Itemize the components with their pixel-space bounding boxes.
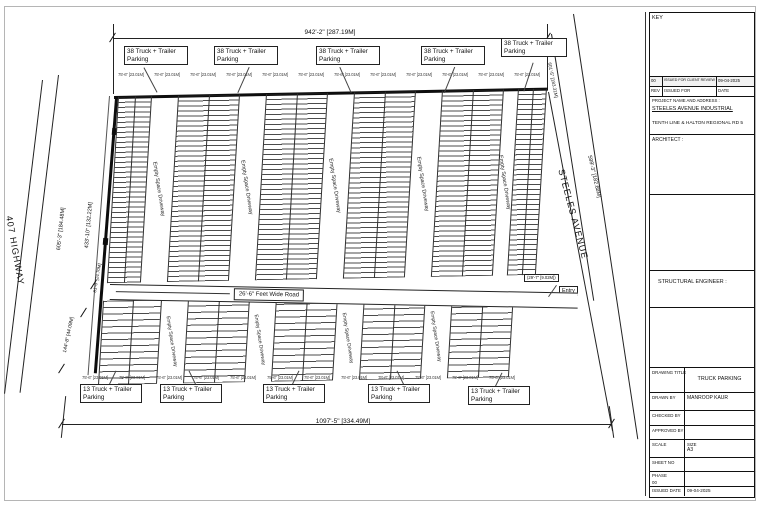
driveway-label: Empty Space Driveway: [415, 156, 429, 212]
approved-by-label: APPROVED BY: [652, 428, 683, 433]
architect-section: ARCHITECT :: [650, 135, 754, 195]
stall-ladder: [167, 95, 240, 282]
rev-issued-for: ISSUED FOR CLIENT REVIEW: [663, 77, 717, 86]
driveway-label: Empty Space Driveway: [341, 312, 355, 364]
parking-sign-top-1: 38 Truck + Trailer Parking: [124, 46, 188, 65]
sheet-no-value: [684, 458, 754, 471]
structural-label: STRUCTURAL ENGINEER :: [658, 279, 727, 285]
stall-ladder: [431, 89, 504, 276]
blank-section-2: [650, 308, 754, 368]
sheet-no-row: SHEET NO: [650, 458, 754, 472]
revision-header-row: REV ISSUED FOR DATE: [650, 87, 754, 97]
driveway-label: Empty Space Driveway: [497, 155, 511, 211]
approved-by-row: APPROVED BY: [650, 426, 754, 440]
parking-sign-top-4: 38 Truck + Trailer Parking: [421, 46, 485, 65]
phase-value: 00: [652, 480, 657, 485]
issued-for-col-header: ISSUED FOR: [663, 87, 717, 96]
bay-dim: 75'-6" [23.01M]: [190, 72, 216, 77]
parking-sign-bottom-3: 13 Truck + Trailer Parking: [263, 384, 325, 403]
issued-date-value: 09-04-2025: [684, 487, 754, 496]
driveway-label: Empty Space Driveway: [239, 160, 253, 216]
key-label: KEY: [652, 15, 663, 21]
drawing-title-value: TRUCK PARKING: [684, 368, 754, 392]
parking-sign-top-2: 38 Truck + Trailer Parking: [214, 46, 278, 65]
structural-section: STRUCTURAL ENGINEER :: [650, 271, 754, 308]
road-label: 26'-6" Feet Wide Road: [234, 288, 305, 301]
rev-date: 09-04-2025: [717, 77, 752, 86]
parking-sign-top-5: 38 Truck + Trailer Parking: [501, 38, 567, 57]
size-cell: SIZE A3: [684, 440, 754, 457]
bay-dim: 75'-6" [23.01M]: [478, 72, 504, 77]
driveway-label: Empty Space Driveway: [253, 314, 267, 366]
revision-entry-row: 00 ISSUED FOR CLIENT REVIEW 09-04-2025: [650, 77, 754, 87]
bay-dim: 75'-6" [23.01M]: [304, 375, 330, 380]
sheet-no-label: SHEET NO: [652, 460, 674, 465]
parking-sign-bottom-4: 13 Truck + Trailer Parking: [368, 384, 430, 403]
bay-dim: 75'-6" [23.01M]: [370, 72, 396, 77]
dim-entry-upper: (29'-7" [9.02M]): [524, 274, 559, 282]
stall-ladder: [359, 295, 426, 380]
driveway-label: Empty Space Driveway: [151, 161, 165, 217]
project-name: STEELES AVENUE INDUSTRIAL: [652, 106, 733, 112]
top-dimension-line: [113, 38, 548, 39]
titleblock-divider: [645, 12, 646, 496]
bay-dim: 75'-6" [23.01M]: [119, 375, 145, 380]
drawn-by-row: DRAWN BY MANROOP KAUR: [650, 393, 754, 411]
bay-dim: 75'-6" [23.01M]: [267, 375, 293, 380]
stall-ladder: [107, 96, 152, 283]
project-section: PROJECT NAME AND ADDRESS : STEELES AVENU…: [650, 97, 754, 135]
parking-sign-top-3: 38 Truck + Trailer Parking: [316, 46, 380, 65]
stall-field-top: Empty Space Driveway Empty Space Drivewa…: [101, 89, 548, 284]
project-heading: PROJECT NAME AND ADDRESS :: [652, 98, 720, 103]
phase-row: PHASE 00: [650, 472, 754, 487]
stall-ladder: [271, 296, 338, 381]
drawn-by-label: DRAWN BY: [652, 395, 676, 400]
bay-dim: 75'-6" [23.01M]: [415, 375, 441, 380]
checked-by-value: [684, 411, 754, 425]
rev-number: 00: [650, 77, 663, 86]
size-value: A3: [687, 447, 752, 453]
bay-dim: 75'-6" [23.01M]: [452, 375, 478, 380]
phase-cell: [684, 472, 754, 486]
bay-dim: 75'-6" [23.01M]: [118, 72, 144, 77]
stall-ladder: [255, 93, 328, 280]
stall-ladder: [98, 300, 162, 385]
date-col-header: DATE: [717, 87, 752, 96]
top-dimension-label: 942'-2" [287.19M]: [250, 29, 410, 36]
bay-dim: 75'-6" [23.01M]: [154, 72, 180, 77]
bay-dim: 75'-6" [23.01M]: [406, 72, 432, 77]
approved-by-value: [684, 426, 754, 439]
bay-dim: 75'-6" [23.01M]: [193, 375, 219, 380]
parking-sign-bottom-1: 13 Truck + Trailer Parking: [80, 384, 142, 403]
key-section: KEY: [650, 13, 754, 77]
parking-sign-bottom-2: 13 Truck + Trailer Parking: [160, 384, 222, 403]
driveway-label: Empty Space Driveway: [327, 158, 341, 214]
checked-by-row: CHECKED BY: [650, 411, 754, 426]
drawing-sheet: 942'-2" [287.19M] 38 Truck + Trailer Par…: [0, 0, 760, 505]
blank-section-1: [650, 195, 754, 271]
architect-label: ARCHITECT :: [652, 137, 683, 143]
driveway-label: Empty Space Driveway: [165, 316, 179, 368]
title-block: KEY 00 ISSUED FOR CLIENT REVIEW 09-04-20…: [649, 12, 755, 498]
parking-sign-bottom-5: 13 Truck + Trailer Parking: [468, 386, 530, 405]
issued-date-row: ISSUED DATE 09-04-2025: [650, 487, 754, 496]
project-address: TENTH LINE & HALTON REGIONAL RD 5: [652, 121, 743, 126]
bay-dim: 75'-6" [23.01M]: [82, 375, 108, 380]
bay-dim: 75'-6" [23.01M]: [156, 375, 182, 380]
drawing-title-label: DRAWING TITLE: [652, 370, 686, 375]
bay-dim: 75'-6" [23.01M]: [230, 375, 256, 380]
bay-dim: 75'-6" [23.01M]: [298, 72, 324, 77]
road-dim-line: [116, 291, 230, 294]
bay-dim: 75'-6" [23.01M]: [341, 375, 367, 380]
scale-row: SCALE SIZE A3: [650, 440, 754, 458]
scale-label: SCALE: [652, 442, 666, 447]
stall-ladder: [183, 298, 250, 383]
phase-label: PHASE: [652, 473, 667, 478]
bay-dim: 75'-6" [23.01M]: [489, 375, 515, 380]
extension-line: [113, 24, 114, 94]
bay-dim: 75'-6" [23.01M]: [262, 72, 288, 77]
stall-ladder: [343, 91, 416, 278]
rev-col-header: REV: [650, 87, 663, 96]
bottom-dimension-label: 1097'-5" [334.49M]: [258, 418, 428, 425]
issued-date-label: ISSUED DATE: [652, 488, 681, 493]
driveway-label: Empty Space Driveway: [429, 311, 443, 363]
drawn-by-value: MANROOP KAUR: [684, 393, 754, 410]
drawing-title-row: DRAWING TITLE TRUCK PARKING: [650, 368, 754, 393]
checked-by-label: CHECKED BY: [652, 413, 681, 418]
bay-dim: 75'-6" [23.01M]: [334, 72, 360, 77]
bay-dim: 75'-6" [23.01M]: [226, 72, 252, 77]
bay-dim: 75'-6" [23.01M]: [442, 72, 468, 77]
